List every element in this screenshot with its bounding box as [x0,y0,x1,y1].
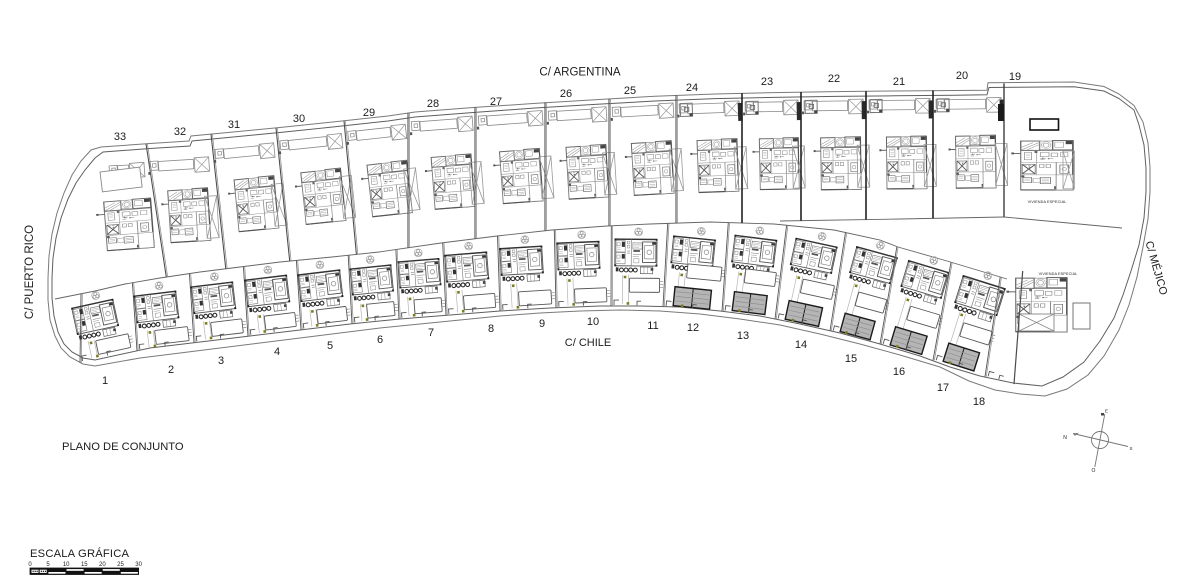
svg-text:25: 25 [624,85,636,97]
svg-text:8: 8 [488,323,494,335]
svg-text:11: 11 [647,320,658,332]
svg-text:6: 6 [377,334,383,346]
svg-text:18: 18 [973,396,985,408]
svg-text:16: 16 [893,366,905,378]
svg-text:VIVIENDA ESPECIAL: VIVIENDA ESPECIAL [1028,200,1067,204]
svg-text:O: O [1092,468,1096,474]
svg-text:PLANO DE CONJUNTO: PLANO DE CONJUNTO [62,441,184,453]
svg-text:23: 23 [761,76,773,88]
svg-text:E: E [1105,409,1108,414]
svg-text:3: 3 [218,355,224,367]
svg-text:2: 2 [168,364,174,376]
svg-text:N: N [1063,435,1067,441]
svg-text:15: 15 [81,562,88,568]
svg-text:13: 13 [737,330,749,342]
svg-text:12: 12 [687,322,699,334]
svg-text:10: 10 [63,562,70,568]
svg-text:33: 33 [114,131,126,143]
svg-text:17: 17 [937,382,949,394]
svg-text:C/ CHILE: C/ CHILE [565,337,611,349]
svg-text:C/ PUERTO RICO: C/ PUERTO RICO [24,225,36,319]
svg-text:27: 27 [490,96,502,108]
svg-text:30: 30 [293,113,305,125]
svg-text:9: 9 [539,318,545,330]
svg-text:20: 20 [956,70,968,82]
svg-text:21: 21 [893,76,905,88]
svg-text:22: 22 [828,73,840,85]
svg-text:30: 30 [135,562,142,568]
svg-text:C/ ARGENTINA: C/ ARGENTINA [539,67,620,79]
svg-text:29: 29 [363,107,375,119]
svg-text:5: 5 [327,340,333,352]
svg-text:25: 25 [117,562,124,568]
svg-text:20: 20 [99,562,106,568]
svg-text:14: 14 [795,339,807,351]
svg-text:S: S [1129,446,1132,451]
svg-text:7: 7 [428,327,434,339]
svg-text:26: 26 [560,88,572,100]
svg-text:24: 24 [686,82,698,94]
svg-text:31: 31 [228,119,240,131]
svg-text:28: 28 [427,98,439,110]
svg-text:32: 32 [174,126,186,138]
svg-text:19: 19 [1009,71,1021,83]
svg-text:10: 10 [587,316,599,328]
svg-text:ESCALA GRÁFICA: ESCALA GRÁFICA [30,547,130,560]
svg-text:15: 15 [845,353,857,365]
svg-text:1: 1 [102,375,108,387]
svg-text:4: 4 [274,346,280,358]
svg-text:VIVIENDA ESPECIAL: VIVIENDA ESPECIAL [1039,272,1078,276]
